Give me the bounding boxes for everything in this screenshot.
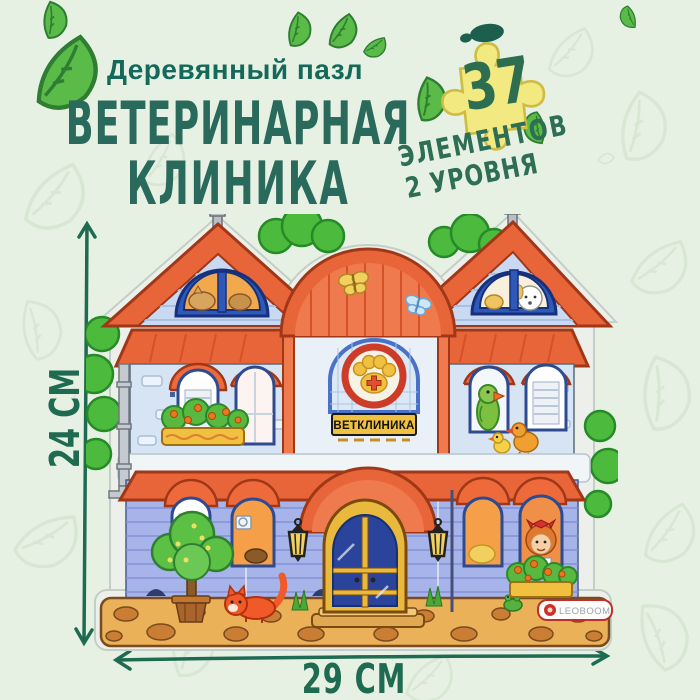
paint-blob — [459, 22, 505, 45]
brand-plate: LEOBOOM — [538, 600, 612, 620]
vet-emblem-window — [330, 340, 418, 412]
product-image: ВЕТКЛИНИКА — [0, 0, 700, 700]
product-subtitle: Деревянный пазл — [28, 54, 442, 86]
hamster-window — [232, 499, 274, 566]
brand-text: LEOBOOM — [559, 606, 611, 617]
girl-window — [520, 496, 562, 566]
central-tower: ВЕТКЛИНИКА — [281, 249, 455, 456]
puzzle-house-illustration: ВЕТКЛИНИКА — [86, 214, 618, 654]
hamster — [245, 549, 267, 563]
shuttered-window — [526, 365, 566, 430]
width-dimension-label: 29 СМ — [279, 656, 429, 700]
sleeping-cat — [469, 545, 495, 563]
clinic-sign-text: ВЕТКЛИНИКА — [333, 420, 414, 432]
product-title-line2: КЛИНИКА — [54, 148, 422, 218]
cat-window — [464, 498, 502, 566]
height-dimension-label: 24 СМ — [42, 352, 90, 485]
parrot-window — [470, 367, 508, 432]
